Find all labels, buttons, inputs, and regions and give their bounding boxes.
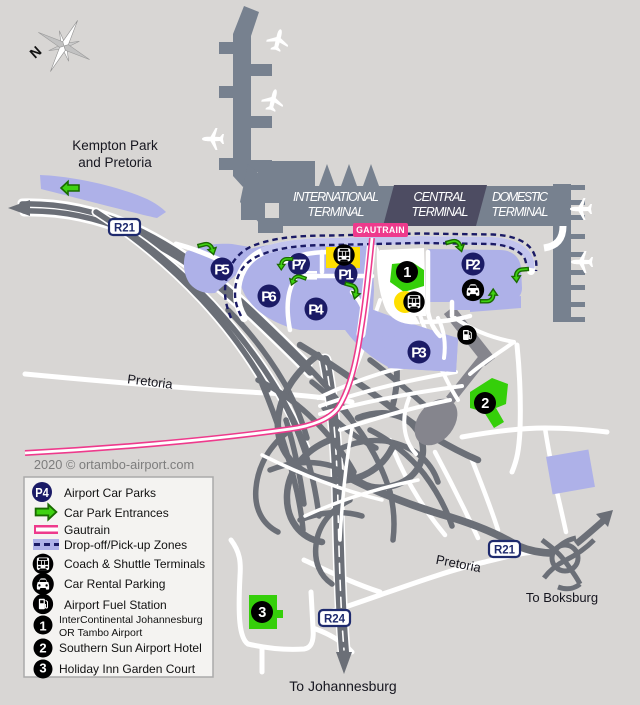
svg-text:Gautrain: Gautrain [64,523,110,537]
svg-text:2020 © ortambo-airport.com: 2020 © ortambo-airport.com [34,457,194,472]
svg-text:P6: P6 [261,289,277,306]
svg-text:Holiday Inn Garden Court: Holiday Inn Garden Court [59,662,196,676]
svg-text:To Johannesburg: To Johannesburg [289,678,396,694]
svg-text:INTERNATIONAL: INTERNATIONAL [293,190,379,204]
svg-text:1: 1 [39,619,46,634]
svg-text:TERMINAL: TERMINAL [412,205,469,219]
svg-text:CENTRAL: CENTRAL [414,190,467,204]
svg-text:P7: P7 [292,257,307,274]
svg-text:P3: P3 [411,345,427,362]
svg-text:OR Tambo Airport: OR Tambo Airport [59,627,142,639]
svg-text:TERMINAL: TERMINAL [492,205,549,219]
svg-text:R21: R21 [494,545,516,557]
svg-text:Car Rental Parking: Car Rental Parking [64,577,165,591]
svg-text:R24: R24 [324,614,346,626]
svg-text:2: 2 [39,641,46,656]
svg-text:and Pretoria: and Pretoria [78,155,152,170]
svg-text:Car Park Entrances: Car Park Entrances [64,506,169,520]
svg-text:P4: P4 [308,302,324,319]
svg-text:Kempton Park: Kempton Park [72,138,158,153]
svg-text:3: 3 [258,605,266,621]
svg-text:P1: P1 [338,267,354,284]
svg-text:Coach & Shuttle Terminals: Coach & Shuttle Terminals [64,557,205,571]
svg-text:P4: P4 [35,485,49,500]
svg-text:Drop-off/Pick-up Zones: Drop-off/Pick-up Zones [64,538,187,552]
svg-text:2: 2 [481,396,489,412]
svg-text:3: 3 [39,661,46,676]
svg-text:P5: P5 [214,262,230,279]
svg-text:DOMESTIC: DOMESTIC [492,190,549,204]
svg-text:1: 1 [403,265,411,281]
svg-text:To Boksburg: To Boksburg [526,590,598,605]
svg-text:InterContinental Johannesburg: InterContinental Johannesburg [59,614,203,626]
svg-text:TERMINAL: TERMINAL [308,205,365,219]
svg-text:GAUTRAIN: GAUTRAIN [356,225,405,235]
svg-text:P2: P2 [465,257,481,274]
svg-text:Airport Car Parks: Airport Car Parks [64,486,156,500]
svg-text:Southern Sun Airport Hotel: Southern Sun Airport Hotel [59,641,202,655]
svg-text:R21: R21 [114,223,136,235]
svg-text:Airport Fuel Station: Airport Fuel Station [64,598,167,612]
